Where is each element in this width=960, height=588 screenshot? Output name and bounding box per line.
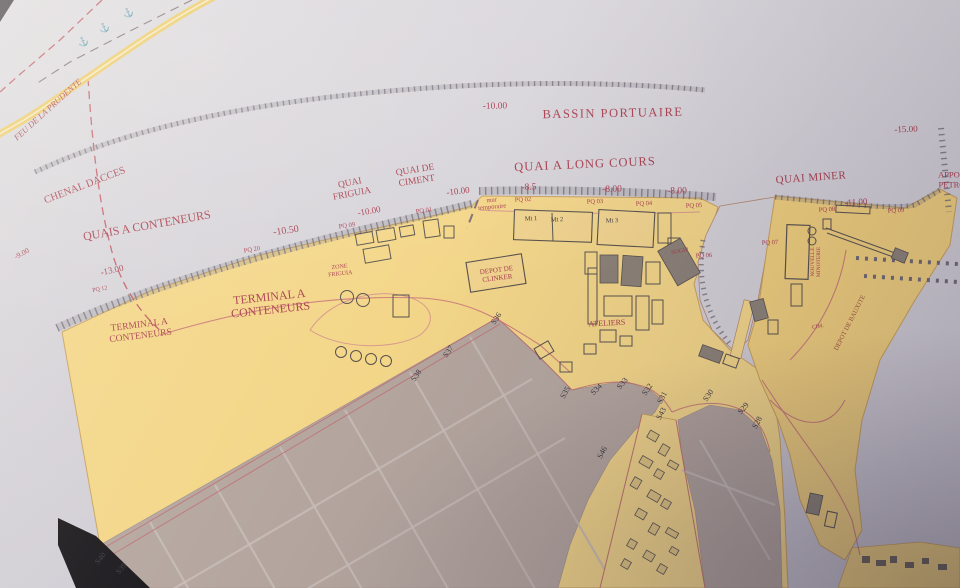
label-pq-06: PQ 06 [696, 252, 713, 260]
label-layer: FEU DE LA PRUDENTECHENAL DACCESQUAIS A C… [0, 0, 960, 588]
label-mur-temporaire: mur temporaire [477, 196, 506, 213]
label-depth-chenal: -13.00 [100, 263, 125, 278]
label-terminal-a-conteneurs-1: TERMINAL A CONTENEURS [229, 286, 311, 321]
label-depth-friguia: -10.00 [357, 204, 382, 218]
label-s40: S40 [94, 551, 109, 566]
label-s46: S46 [596, 445, 610, 460]
label-pq-02: PQ 02 [515, 196, 532, 204]
label-depth-long-cours-1: -8.5 [521, 182, 537, 193]
label-s38: S38 [410, 368, 424, 383]
label-depot-de-clinker: DEPOT DE CLINKER [479, 265, 514, 285]
label-s32: S32 [641, 382, 655, 397]
label-depth-entrance: -9.00 [13, 247, 31, 262]
label-depth-conteneurs: -10.50 [272, 224, 299, 239]
label-quai-de-ciment: QUAI DE CIMENT [395, 162, 437, 189]
label-depot-de-bauxite: DEPOT DE BAUXITE [833, 294, 867, 352]
label-s30: S30 [702, 388, 716, 403]
label-s34: S34 [589, 382, 604, 397]
label-quai-friguia: QUAI FRIGUIA [330, 175, 372, 203]
label-s37: S37 [442, 344, 456, 359]
label-s28: S28 [751, 415, 765, 430]
label-s43: S43 [655, 406, 669, 421]
label-s35: S35 [559, 385, 573, 400]
port-plan-photo: ⚓ ⚓ ⚓ FEU DE LA PRUDENTECHENAL DACCESQUA… [0, 0, 960, 588]
label-pq-05: PQ 05 [686, 202, 703, 210]
label-depth-long-cours-3: -8.00 [667, 187, 687, 198]
label-sogip: SOGIP [671, 247, 689, 257]
label-bassin-portuaire: BASSIN PORTUAIRE [542, 105, 683, 121]
label-quais-a-conteneurs: QUAIS A CONTENEURS [82, 208, 212, 244]
label-chenal-dacces: CHENAL DACCES [43, 165, 128, 207]
label-mt-3: Mt 3 [606, 217, 619, 225]
label-cim: CIM. [812, 323, 825, 331]
label-depth-ciment: -10.00 [446, 185, 470, 198]
label-feu-de-la-prudente: FEU DE LA PRUDENTE [12, 77, 83, 143]
label-quai-mineralier: QUAI MINER [775, 169, 846, 186]
label-s29: S29 [737, 401, 752, 416]
label-pq-12: PQ 12 [92, 285, 108, 294]
label-pq-03: PQ 03 [587, 198, 604, 206]
label-pq-09-ouest: PQ 09 [338, 221, 355, 230]
label-appontement-petrolier: APPON PETRO [938, 170, 960, 189]
label-s36: S36 [490, 311, 504, 326]
label-s31: S31 [656, 390, 670, 405]
label-pq-20: PQ 20 [243, 245, 260, 255]
label-depth-nord: -15.00 [894, 124, 918, 135]
label-mt-1: Mt 1 [525, 215, 538, 223]
label-ateliers: ATELIERS [588, 319, 625, 330]
label-nouvelle-minoterie: NOUVELLE MINOTERIE [810, 247, 822, 277]
label-mt-2: Mt 2 [551, 216, 564, 224]
label-zone-friguia: ZONE FRIGUIA [327, 263, 353, 279]
label-depth-bassin: -10.00 [483, 101, 508, 112]
label-s39: S39 [115, 561, 130, 576]
label-terminal-a-conteneurs-2: TERMINAL A CONTENEURS [108, 317, 173, 346]
label-s33: S33 [616, 376, 631, 391]
label-pq-07: PQ 07 [762, 239, 779, 247]
label-pq-09-est: PQ 09 [888, 207, 905, 215]
label-depth-long-cours-2: -8.00 [602, 184, 622, 195]
label-pq-08: PQ 08 [819, 206, 836, 214]
label-depth-mineralier: -11.00 [844, 196, 868, 208]
label-quai-a-long-cours: QUAI A LONG COURS [514, 154, 656, 174]
label-pq-04: PQ 04 [636, 200, 653, 208]
label-pq-01: PQ 01 [415, 206, 432, 215]
